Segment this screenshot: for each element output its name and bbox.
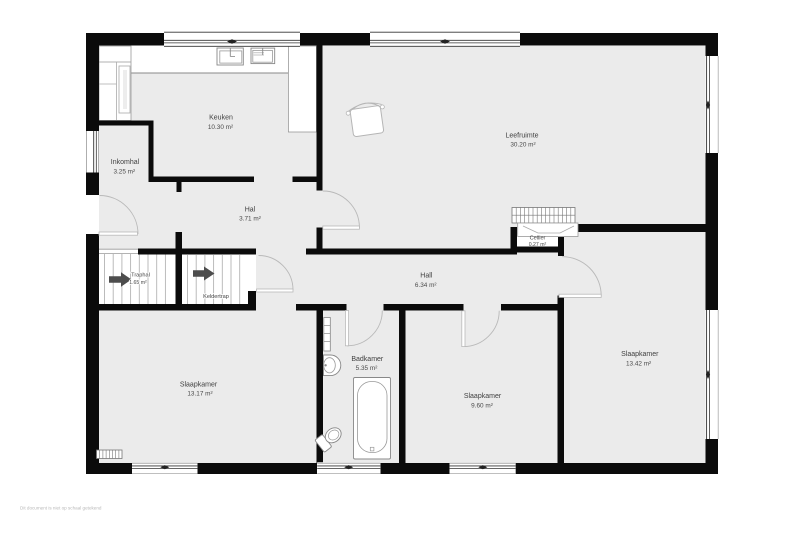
svg-text:Inkomhal: Inkomhal (111, 159, 140, 166)
svg-text:Cellier: Cellier (530, 235, 546, 241)
svg-text:10.30 m²: 10.30 m² (208, 124, 233, 131)
svg-text:Leefruimte: Leefruimte (505, 132, 538, 139)
svg-text:Traphal: Traphal (131, 273, 150, 279)
svg-text:Badkamer: Badkamer (351, 356, 384, 363)
svg-text:Dit document is niet op schaal: Dit document is niet op schaal getekend (20, 506, 102, 511)
svg-text:9.60 m²: 9.60 m² (471, 402, 493, 409)
svg-text:Slaapkamer: Slaapkamer (180, 381, 218, 388)
svg-text:6.34 m²: 6.34 m² (415, 282, 437, 289)
svg-text:Hal: Hal (245, 207, 256, 214)
svg-text:30.20 m²: 30.20 m² (510, 142, 535, 149)
svg-text:Keuken: Keuken (209, 115, 233, 122)
svg-text:5.35 m²: 5.35 m² (356, 365, 378, 372)
svg-text:Hall: Hall (420, 272, 433, 279)
svg-text:13.42 m²: 13.42 m² (626, 360, 651, 367)
svg-text:Keldertrap: Keldertrap (203, 294, 229, 300)
svg-text:Slaapkamer: Slaapkamer (464, 393, 502, 400)
svg-text:Slaapkamer: Slaapkamer (621, 351, 659, 358)
svg-text:3.71 m²: 3.71 m² (239, 215, 261, 222)
svg-text:3.25 m²: 3.25 m² (113, 168, 135, 175)
svg-text:1.65 m²: 1.65 m² (129, 280, 147, 286)
svg-text:0.27 m²: 0.27 m² (529, 242, 547, 248)
svg-text:13.17 m²: 13.17 m² (187, 391, 212, 398)
